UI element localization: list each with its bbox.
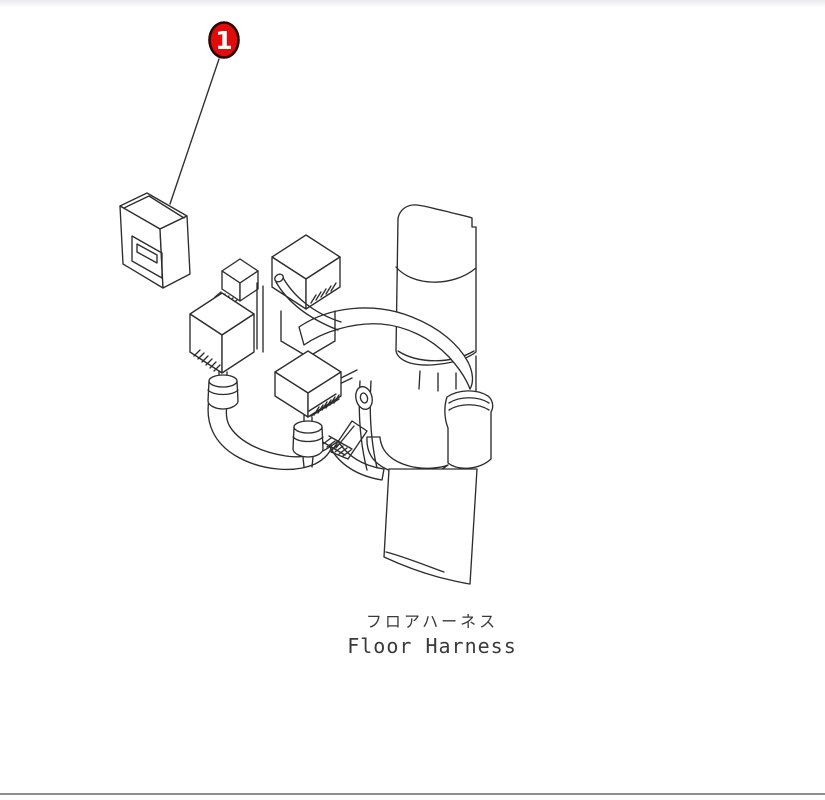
callout-balloon-1[interactable]: 1 bbox=[210, 23, 239, 58]
grommet-left bbox=[208, 371, 238, 409]
callout-leader-line bbox=[170, 59, 219, 204]
bottom-border-line bbox=[0, 793, 825, 795]
part-1-connector-box bbox=[120, 193, 190, 288]
diagram-caption-en: Floor Harness bbox=[347, 634, 517, 658]
diagram-caption-ja: フロアハーネス bbox=[366, 608, 498, 632]
floor-harness-diagram: 1 bbox=[0, 0, 825, 800]
callout-number: 1 bbox=[215, 26, 232, 55]
connector-cube-front bbox=[275, 351, 341, 417]
harness-flat-tail bbox=[384, 469, 477, 584]
parts-diagram-page: 1 フロアハーネス Floor Harness bbox=[0, 0, 825, 800]
harness-clamp-band bbox=[445, 391, 493, 468]
connector-cube-left bbox=[190, 293, 254, 373]
